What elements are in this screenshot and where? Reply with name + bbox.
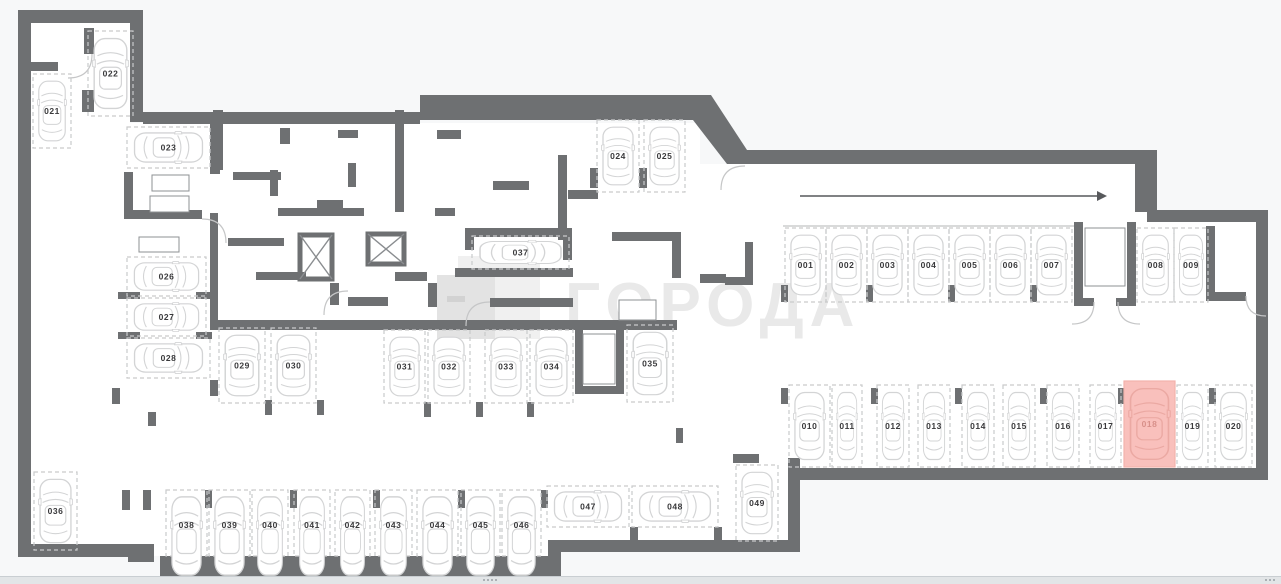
parking-floorplan: ГОРОДА <box>0 0 1281 584</box>
stall-number: 013 <box>926 421 942 431</box>
stall-number: 037 <box>513 248 529 258</box>
stall-number: 026 <box>159 272 175 282</box>
stall-number: 028 <box>161 353 177 363</box>
stall-number: 010 <box>802 421 818 431</box>
stall-number: 040 <box>262 520 278 530</box>
car-icon <box>339 497 365 575</box>
stall-number: 018 <box>1142 419 1158 429</box>
car-icon <box>422 497 454 575</box>
stall-number: 045 <box>473 520 489 530</box>
stall-number: 039 <box>222 520 238 530</box>
stall-number: 009 <box>1183 260 1199 270</box>
stall-number: 019 <box>1185 421 1201 431</box>
stall-number: 043 <box>386 520 402 530</box>
stall-number: 025 <box>657 151 673 161</box>
stall-number: 017 <box>1098 421 1114 431</box>
parking-stall-018[interactable]: 018 <box>1124 381 1175 467</box>
stall-number: 004 <box>921 260 937 270</box>
stall-number: 014 <box>970 421 986 431</box>
car-icon <box>466 497 496 575</box>
stall-number: 035 <box>642 359 658 369</box>
stall-number: 049 <box>749 498 765 508</box>
stairs-icon <box>1085 228 1125 286</box>
stall-number: 046 <box>514 520 530 530</box>
stall-number: 011 <box>839 421 854 431</box>
stall-number: 016 <box>1055 421 1071 431</box>
stall-number: 002 <box>839 260 855 270</box>
stairs-icon <box>139 237 179 252</box>
stall-number: 033 <box>498 362 514 372</box>
stall-number: 001 <box>798 260 814 270</box>
stall-number: 048 <box>667 502 683 512</box>
stall-number: 024 <box>610 151 626 161</box>
floorplan-svg: ГОРОДА <box>0 0 1281 584</box>
car-icon <box>171 497 203 575</box>
stairs-icon <box>619 300 656 320</box>
stall-number: 030 <box>286 361 302 371</box>
stall-number: 034 <box>544 362 560 372</box>
stall-number: 022 <box>103 69 119 79</box>
drag-grip-icon[interactable] <box>483 578 497 582</box>
stairs-icon <box>583 334 615 384</box>
stairs-icon <box>152 175 189 191</box>
stall-number: 031 <box>397 362 413 372</box>
stall-number: 012 <box>885 421 901 431</box>
stall-number: 007 <box>1044 260 1060 270</box>
car-icon <box>380 497 408 575</box>
stall-number: 005 <box>962 260 978 270</box>
stall-number: 032 <box>441 362 457 372</box>
resize-corner-icon <box>1265 578 1275 583</box>
stall-number: 027 <box>159 312 175 322</box>
car-icon <box>214 497 246 575</box>
stall-number: 020 <box>1226 421 1242 431</box>
stall-number: 036 <box>48 506 64 516</box>
stall-number: 021 <box>44 106 60 116</box>
bottom-scrollbar[interactable] <box>0 576 1281 584</box>
stall-number: 015 <box>1011 421 1027 431</box>
stall-number: 006 <box>1003 260 1019 270</box>
stall-number: 038 <box>179 520 195 530</box>
stall-number: 047 <box>580 502 596 512</box>
stall-number: 029 <box>234 361 250 371</box>
stall-number: 008 <box>1148 260 1164 270</box>
stall-number: 041 <box>304 520 320 530</box>
car-icon <box>256 497 283 575</box>
car-icon <box>507 497 537 575</box>
car-icon <box>298 497 325 575</box>
stall-number: 023 <box>161 143 177 153</box>
stall-number: 042 <box>345 520 361 530</box>
stall-number: 044 <box>430 520 446 530</box>
stall-number: 003 <box>880 260 896 270</box>
stairs-icon <box>150 196 189 212</box>
